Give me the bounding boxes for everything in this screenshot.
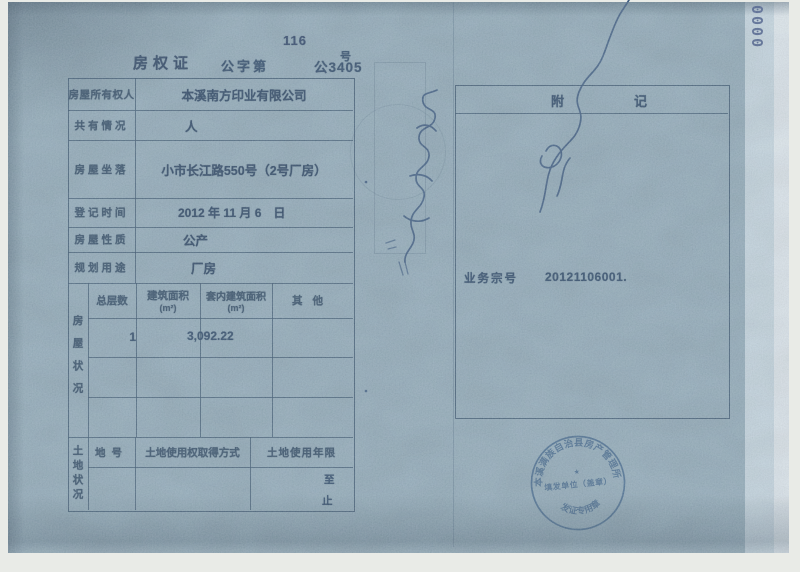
handwritten-signature-diagonal (540, 145, 561, 167)
scanned-certificate-page: 116 房权证 公字第 公3405 号 0000 房屋所有权人 本溪南方印业有限… (0, 0, 800, 572)
ink-speck (365, 181, 368, 184)
handwritten-signature-diagonal (557, 158, 570, 196)
scan-shadow-bottom (8, 495, 789, 553)
ink-speck (365, 390, 368, 393)
handwritten-signature-diagonal (540, 0, 629, 212)
handwriting-layer (0, 0, 800, 572)
